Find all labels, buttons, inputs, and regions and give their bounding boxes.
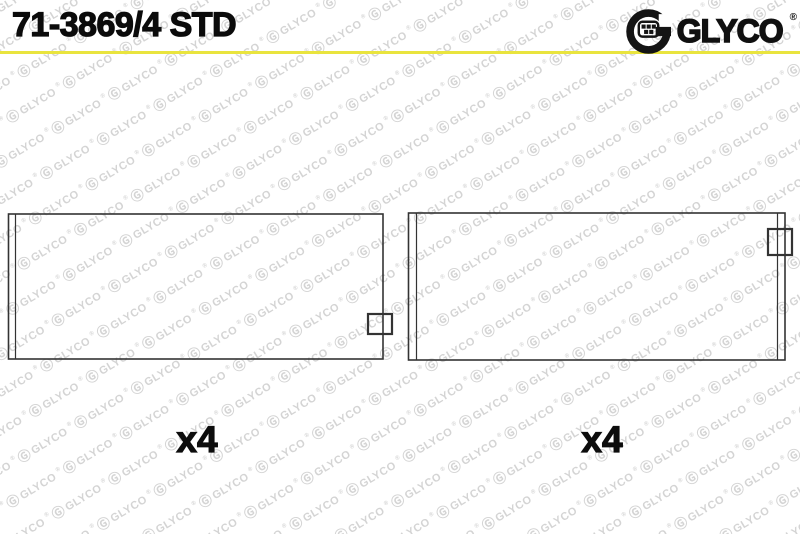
glyco-logo-text: GLYCO <box>677 9 783 54</box>
locating-lug-left <box>368 314 392 334</box>
locating-lug-right <box>768 229 792 255</box>
part-number: 71-3869/4 STD <box>12 6 236 45</box>
bearing-shell-right <box>409 213 793 360</box>
glyco-logo-icon <box>626 9 671 54</box>
registered-trademark-symbol: ® <box>790 12 797 23</box>
bearing-diagram <box>0 0 800 534</box>
quantity-label-left: x4 <box>157 419 237 461</box>
bearing-shell-left <box>9 214 393 359</box>
quantity-label-right: x4 <box>562 419 642 461</box>
glyco-logo: GLYCO ® <box>626 9 797 54</box>
